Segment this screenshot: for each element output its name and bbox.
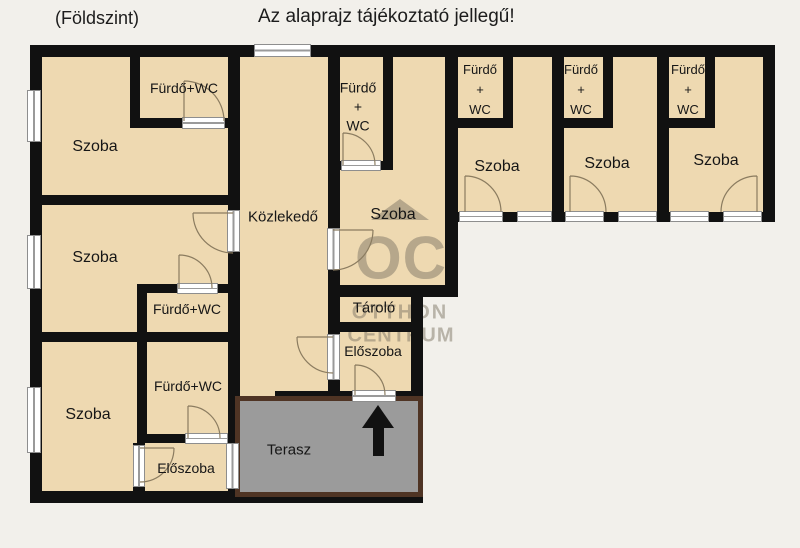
room-label-line: Fürdő xyxy=(340,79,377,98)
room-label-szoba-top-left: Szoba xyxy=(72,138,117,156)
window xyxy=(517,211,552,222)
room-label-line: Fürdő xyxy=(564,60,598,80)
terrace-area xyxy=(235,396,423,497)
window xyxy=(254,44,311,57)
room-label-line: WC xyxy=(463,100,497,120)
room-label-terasz: Terasz xyxy=(267,442,311,459)
door-threshold xyxy=(341,160,381,171)
room-label-eloszoba-right: Előszoba xyxy=(344,343,402,359)
window xyxy=(27,90,41,142)
room-label-furdo-mid-left: Fürdő+WC xyxy=(153,301,221,317)
window xyxy=(670,211,709,222)
door-threshold xyxy=(177,283,218,294)
door-threshold xyxy=(133,445,145,487)
window xyxy=(565,211,604,222)
room-label-line: Fürdő xyxy=(463,60,497,80)
room-label-line: + xyxy=(463,80,497,100)
entrance-arrow-head xyxy=(362,405,394,428)
room-label-szoba-middle: Szoba xyxy=(370,206,415,224)
room-label-line: WC xyxy=(564,100,598,120)
room-label-szoba-wing-2: Szoba xyxy=(584,155,629,173)
wall xyxy=(137,284,147,342)
wall xyxy=(657,57,669,222)
wall xyxy=(383,57,393,162)
wall xyxy=(445,45,458,297)
room-label-line: WC xyxy=(671,100,705,120)
disclaimer-text: Az alaprajz tájékoztató jellegű! xyxy=(258,6,515,28)
wall xyxy=(137,342,147,443)
floorplan-canvas: (Földszint) Az alaprajz tájékoztató jell… xyxy=(0,0,800,548)
door-threshold xyxy=(185,433,228,444)
room-label-furdo-wing-3: Fürdő + WC xyxy=(671,60,705,120)
wall xyxy=(30,332,240,342)
room-label-furdo-top-left: Fürdő+WC xyxy=(150,80,218,96)
wall xyxy=(330,285,458,297)
door-threshold xyxy=(182,117,225,129)
room-label-szoba-bottom-left: Szoba xyxy=(65,406,110,424)
door-threshold xyxy=(352,390,396,402)
room-label-line: WC xyxy=(340,117,377,136)
room-label-furdo-wing-1: Fürdő + WC xyxy=(463,60,497,120)
window xyxy=(618,211,657,222)
room-label-szoba-mid-left: Szoba xyxy=(72,249,117,267)
room-label-kozlekedo: Közlekedő xyxy=(248,209,318,226)
room-label-szoba-wing-3: Szoba xyxy=(693,152,738,170)
room-label-eloszoba-left: Előszoba xyxy=(157,460,215,476)
wall xyxy=(458,212,763,222)
door-threshold xyxy=(226,443,239,489)
window xyxy=(459,211,503,222)
room-label-tarolo: Tároló xyxy=(353,300,396,317)
wall xyxy=(328,322,423,332)
room-label-furdo-wing-2: Fürdő + WC xyxy=(564,60,598,120)
wall xyxy=(30,195,240,205)
door-threshold xyxy=(327,228,340,270)
wall xyxy=(763,45,775,222)
room-label-szoba-wing-1: Szoba xyxy=(474,158,519,176)
wall xyxy=(30,45,775,57)
entrance-arrow-icon xyxy=(362,405,394,456)
wall xyxy=(552,57,564,222)
watermark-initials: OC xyxy=(355,224,447,293)
door-threshold xyxy=(327,334,340,380)
window xyxy=(27,387,41,453)
room-label-line: + xyxy=(564,80,598,100)
door-threshold xyxy=(227,210,240,252)
room-label-furdo-middle: Fürdő + WC xyxy=(340,79,377,136)
room-label-line: + xyxy=(671,80,705,100)
entrance-arrow-shaft xyxy=(373,428,384,456)
room-label-line: Fürdő xyxy=(671,60,705,80)
window xyxy=(723,211,762,222)
window xyxy=(27,235,41,289)
room-label-furdo-bottom-left: Fürdő+WC xyxy=(154,378,222,394)
floor-label: (Földszint) xyxy=(55,8,139,29)
room-label-line: + xyxy=(340,98,377,117)
